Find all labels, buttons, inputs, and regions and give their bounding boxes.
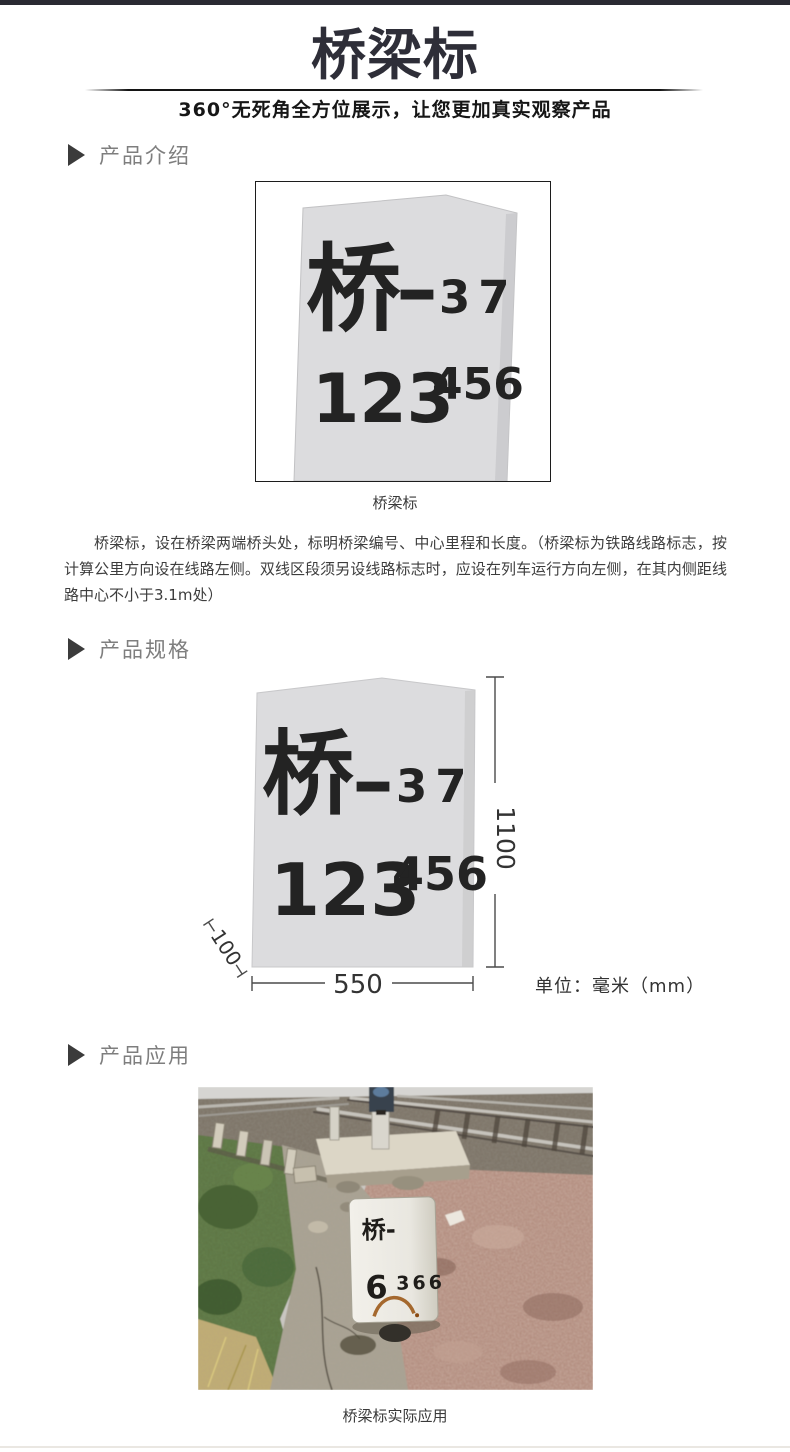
intro-caption: 桥梁标 xyxy=(0,492,790,513)
marker-mileage-sup: 456 xyxy=(432,359,524,410)
marker-serial-number: 37 xyxy=(439,271,518,324)
spec-drawing: 桥 — 37 123 456 1100 550 xyxy=(200,668,700,1013)
dim-top-group: 100 xyxy=(200,915,253,980)
railway-scene: 桥- 6 366 xyxy=(198,1087,593,1390)
bottom-divider xyxy=(0,1446,790,1448)
section-label-app: 产品应用 xyxy=(99,1040,191,1070)
marker-main-char: 桥 xyxy=(262,721,354,828)
marker-sign-drawing: 桥 — 37 123 456 xyxy=(256,182,550,481)
bridge-marker-stone: 桥- 6 366 xyxy=(349,1197,446,1336)
dark-ground-spot xyxy=(379,1324,411,1342)
marker-serial-number: 37 xyxy=(396,760,475,813)
marker-dash: — xyxy=(402,276,432,311)
marker-main-char: 桥 xyxy=(306,235,401,345)
white-post-small xyxy=(330,1107,339,1140)
application-photo: 桥- 6 366 xyxy=(198,1087,593,1390)
product-detail-page: 桥梁标 360°无死角全方位展示，让您更加真实观察产品 产品介绍 桥 — 37 … xyxy=(0,0,790,1452)
dim-top-label: 100 xyxy=(206,925,247,970)
section-label-intro: 产品介绍 xyxy=(99,140,191,170)
section-header-intro: 产品介绍 xyxy=(68,140,191,170)
stone-number: 366 xyxy=(396,1272,445,1295)
section-label-spec: 产品规格 xyxy=(99,634,191,664)
app-caption: 桥梁标实际应用 xyxy=(0,1405,790,1426)
product-intro-figure: 桥 — 37 123 456 xyxy=(255,181,551,482)
section-header-spec: 产品规格 xyxy=(68,634,191,664)
top-accent-bar xyxy=(0,0,790,5)
marker-mileage-sup: 456 xyxy=(392,847,488,901)
arrow-right-icon xyxy=(68,1044,85,1066)
page-subtitle: 360°无死角全方位展示，让您更加真实观察产品 xyxy=(0,95,790,122)
marker-dash: — xyxy=(358,768,388,803)
dim-height-label: 1100 xyxy=(491,806,520,870)
title-underline xyxy=(85,89,703,91)
page-title: 桥梁标 xyxy=(0,24,790,86)
section-header-app: 产品应用 xyxy=(68,1040,191,1070)
product-description: 桥梁标，设在桥梁两端桥头处，标明桥梁编号、中心里程和长度。（桥梁标为铁路线路标志… xyxy=(64,530,727,608)
dim-width-label: 550 xyxy=(333,970,383,1000)
stone-text-line1: 桥- xyxy=(361,1216,396,1245)
arrow-right-icon xyxy=(68,144,85,166)
unit-label: 单位：毫米（mm） xyxy=(535,976,700,997)
product-spec-figure: 桥 — 37 123 456 1100 550 xyxy=(200,668,700,1013)
arrow-right-icon xyxy=(68,638,85,660)
